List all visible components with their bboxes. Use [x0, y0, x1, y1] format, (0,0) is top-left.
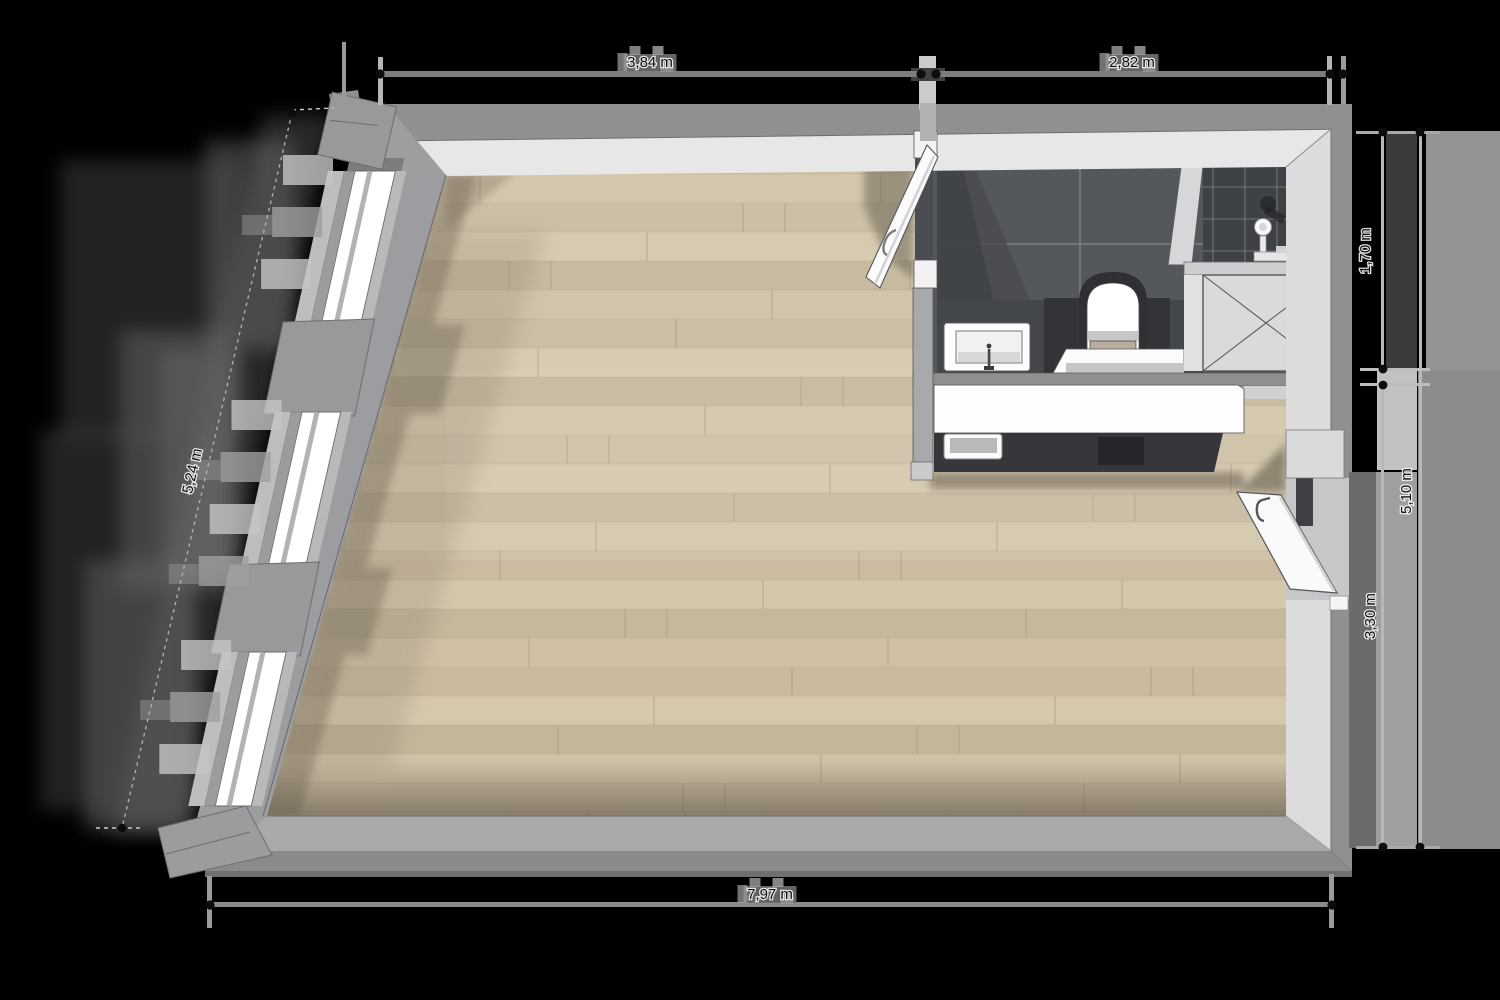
svg-text:3,30 m: 3,30 m	[1362, 593, 1379, 639]
svg-text:5,10 m: 5,10 m	[1398, 468, 1415, 514]
svg-text:2,82 m: 2,82 m	[1109, 54, 1155, 71]
svg-text:3,84 m: 3,84 m	[627, 54, 673, 71]
svg-text:1,70 m: 1,70 m	[1357, 228, 1374, 274]
svg-text:7,97 m: 7,97 m	[747, 886, 793, 903]
